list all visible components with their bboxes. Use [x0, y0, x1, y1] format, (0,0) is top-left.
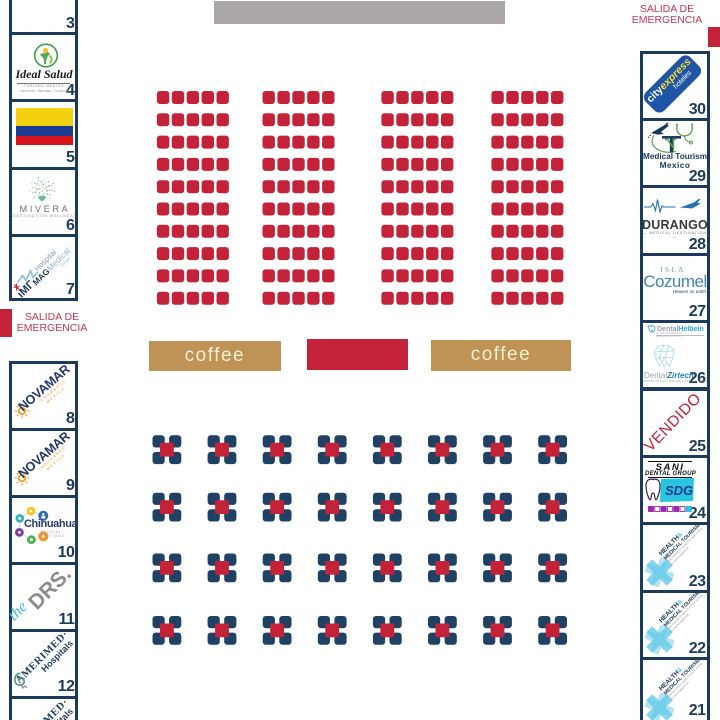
svg-text:SDG: SDG [665, 483, 693, 498]
